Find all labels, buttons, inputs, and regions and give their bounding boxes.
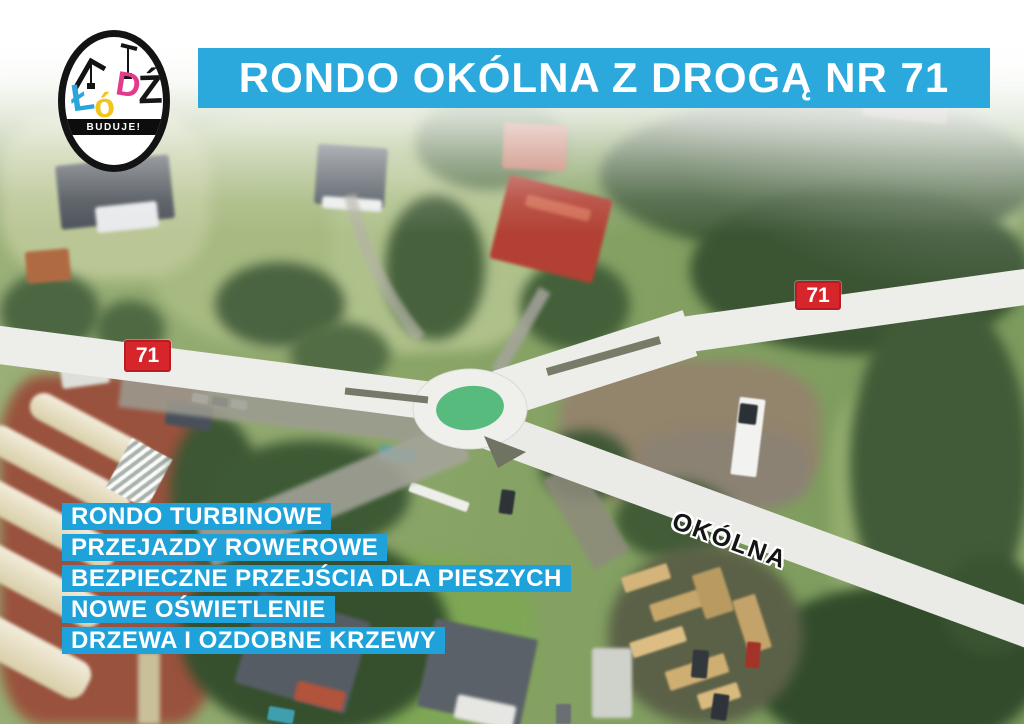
infographic: RONDO OKÓLNA Z DROGĄ NR 71 Ł ó D Ź BUDUJ… (0, 0, 1024, 724)
feature-list: RONDO TURBINOWE PRZEJAZDY ROWEROWE BEZPI… (62, 503, 571, 654)
route-71-badge-east: 71 (795, 281, 841, 310)
lodz-buduje-logo: Ł ó D Ź BUDUJE! (58, 30, 170, 172)
page-title: RONDO OKÓLNA Z DROGĄ NR 71 (239, 54, 949, 102)
feature-item: NOWE OŚWIETLENIE (62, 596, 335, 623)
logo-tagline-band: BUDUJE! (61, 119, 167, 135)
logo-letter-z: Ź (137, 70, 163, 111)
logo-tagline: BUDUJE! (87, 122, 142, 133)
feature-item: DRZEWA I OZDOBNE KRZEWY (62, 627, 445, 654)
route-71-badge-west: 71 (124, 340, 171, 372)
feature-item: BEZPIECZNE PRZEJŚCIA DLA PIESZYCH (62, 565, 571, 592)
road-71-ne-arm (668, 286, 1024, 337)
route-number: 71 (806, 284, 829, 308)
title-banner: RONDO OKÓLNA Z DROGĄ NR 71 (198, 48, 990, 108)
route-number: 71 (136, 344, 159, 368)
road-71-ne-dual-carriageway (500, 333, 690, 394)
feature-item: PRZEJAZDY ROWEROWE (62, 534, 387, 561)
feature-item: RONDO TURBINOWE (62, 503, 331, 530)
